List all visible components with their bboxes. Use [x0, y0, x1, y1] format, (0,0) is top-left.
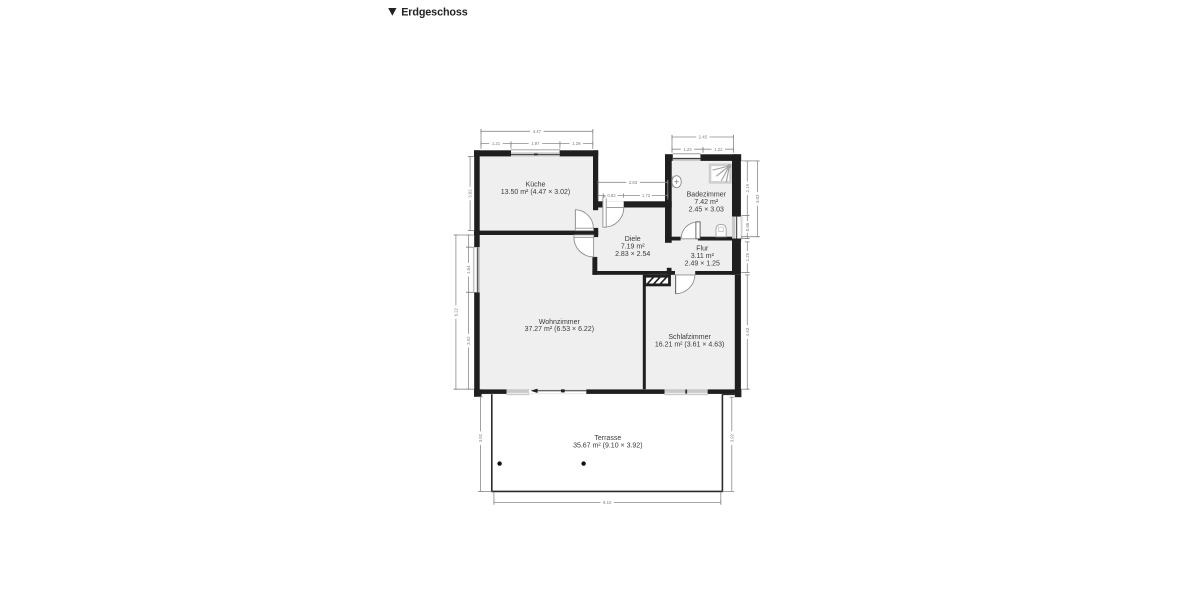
svg-text:35.67 m² (9.10 × 3.92): 35.67 m² (9.10 × 3.92) — [573, 442, 642, 449]
svg-text:Schlafzimmer: Schlafzimmer — [668, 334, 711, 341]
svg-text:1.29: 1.29 — [572, 141, 581, 146]
svg-text:4.63: 4.63 — [745, 327, 750, 336]
svg-text:2.49 × 1.25: 2.49 × 1.25 — [685, 261, 720, 268]
svg-text:16.21 m² (3.61 × 4.63): 16.21 m² (3.61 × 4.63) — [655, 342, 724, 349]
svg-text:2.45 × 3.03: 2.45 × 3.03 — [689, 207, 724, 214]
svg-text:6.22: 6.22 — [453, 307, 458, 316]
svg-text:13.50 m² (4.47 × 3.02): 13.50 m² (4.47 × 3.02) — [501, 189, 570, 196]
svg-text:Badezimmer: Badezimmer — [687, 191, 727, 198]
svg-text:3.92: 3.92 — [478, 433, 483, 442]
svg-text:2.83 × 2.54: 2.83 × 2.54 — [615, 251, 650, 258]
svg-text:1.25: 1.25 — [745, 252, 750, 261]
svg-text:2.19: 2.19 — [745, 183, 750, 192]
svg-text:9.10: 9.10 — [603, 500, 612, 505]
svg-text:Terrasse: Terrasse — [594, 435, 621, 442]
svg-text:1.23: 1.23 — [683, 147, 692, 152]
svg-text:Küche: Küche — [526, 182, 546, 189]
svg-text:Flur: Flur — [696, 245, 709, 252]
svg-text:7.42 m²: 7.42 m² — [694, 199, 718, 206]
svg-text:4.47: 4.47 — [533, 129, 542, 134]
svg-text:3.92: 3.92 — [466, 336, 471, 345]
svg-text:1.84: 1.84 — [466, 265, 471, 274]
svg-text:3.11 m²: 3.11 m² — [691, 253, 715, 260]
svg-text:0.82: 0.82 — [607, 193, 616, 198]
svg-text:0.86: 0.86 — [745, 222, 750, 231]
svg-text:Erdgeschoss: Erdgeschoss — [401, 6, 468, 18]
svg-text:2.83: 2.83 — [629, 180, 638, 185]
svg-text:1.21: 1.21 — [492, 141, 501, 146]
svg-text:1.22: 1.22 — [714, 147, 723, 152]
svg-text:7.19 m²: 7.19 m² — [621, 244, 645, 251]
svg-text:3.02: 3.02 — [468, 189, 473, 198]
svg-text:37.27 m² (6.53 × 6.22): 37.27 m² (6.53 × 6.22) — [525, 326, 594, 333]
svg-text:1.73: 1.73 — [642, 193, 651, 198]
svg-text:3.03: 3.03 — [755, 194, 760, 203]
svg-text:Wohnzimmer: Wohnzimmer — [539, 319, 581, 326]
svg-text:2.45: 2.45 — [699, 135, 708, 140]
svg-text:3.92: 3.92 — [729, 433, 734, 442]
svg-text:1.97: 1.97 — [531, 141, 540, 146]
svg-text:Diele: Diele — [625, 236, 641, 243]
